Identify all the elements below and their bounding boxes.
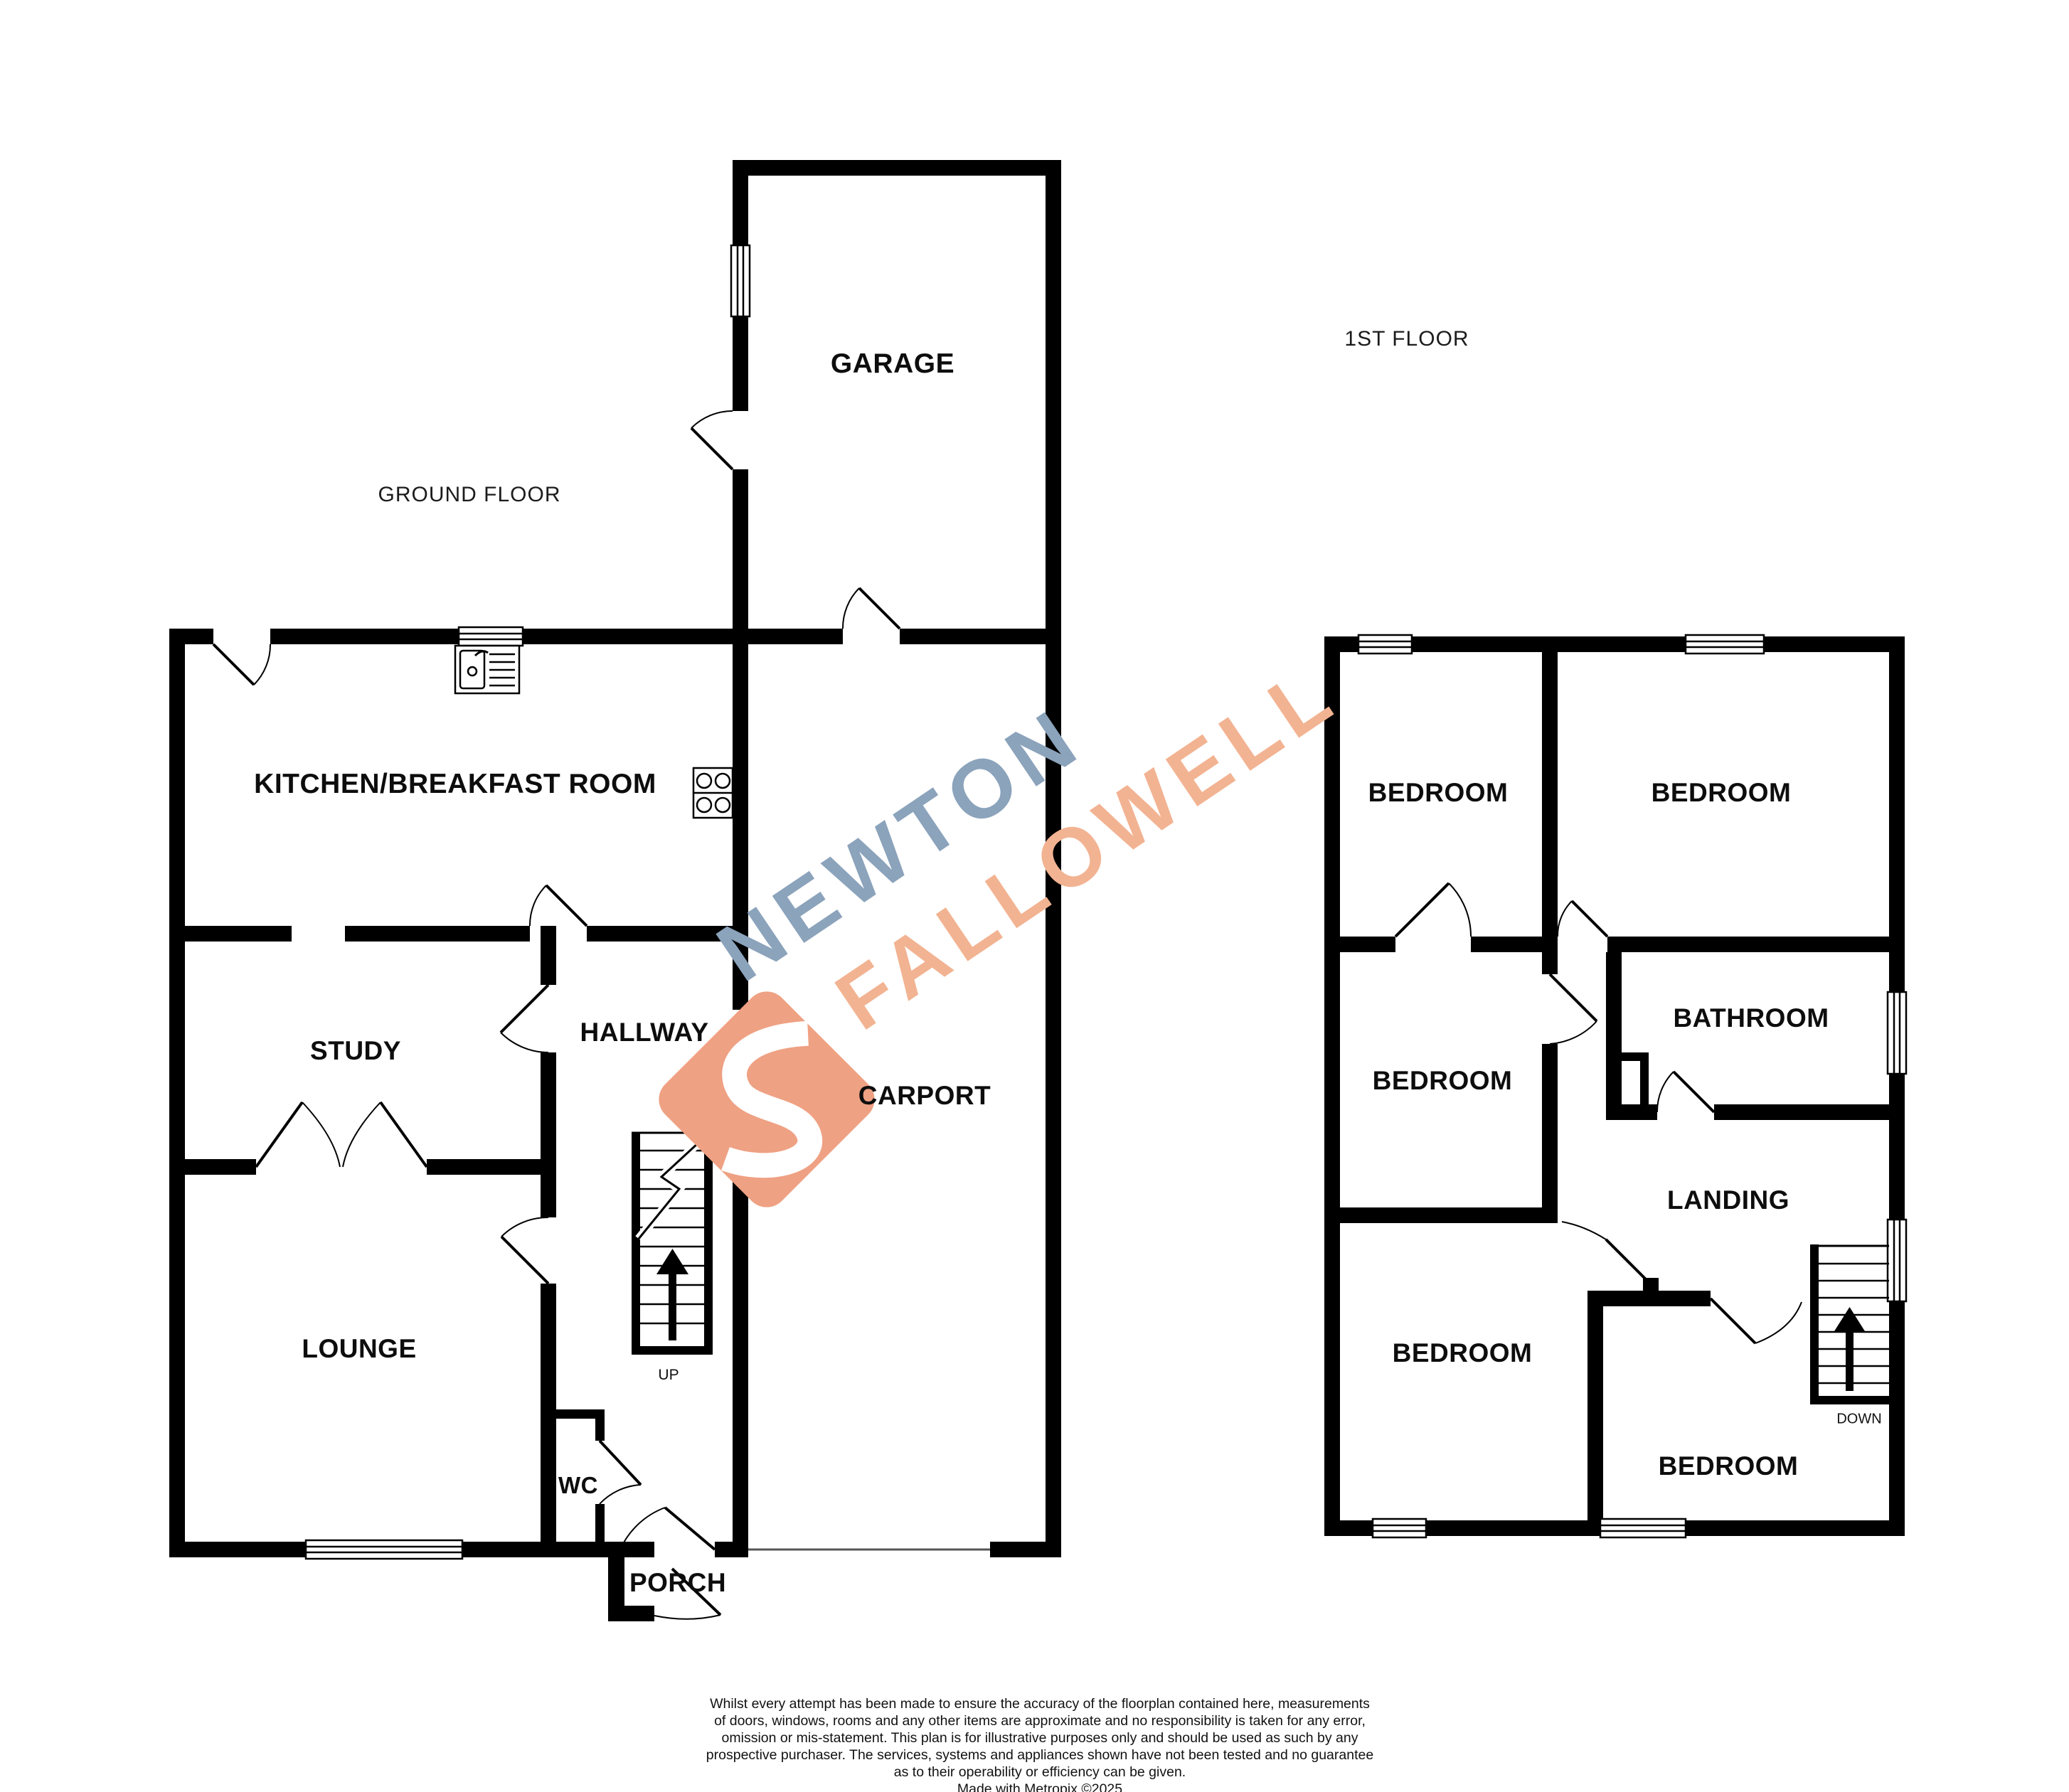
bedroom-top-right-door [1558,901,1607,937]
floorplan-canvas: NEWTON FALLOWELL GROUND FLOOR 1ST FLOOR … [0,0,2069,1792]
bedroom-top-left-door [1395,883,1471,937]
bedroom-top-left-window [1358,635,1412,654]
bedroom-bottom-left-door [1562,1222,1651,1284]
stairs-down-label: DOWN [1836,1412,1881,1428]
room-label-porch: PORCH [629,1568,726,1598]
garage-side-door [691,411,733,469]
room-label-garage: GARAGE [831,348,954,380]
kitchen-hallway-door [530,885,587,926]
bedroom-mid-left-door [1550,974,1597,1044]
floorplan-drawing [0,0,2069,1792]
study-door [501,985,548,1052]
room-label-bedroom-bottom-left: BEDROOM [1393,1338,1533,1368]
lounge-door [501,1217,548,1284]
disclaimer-line-4: prospective purchaser. The services, sys… [613,1746,1467,1764]
kitchen-window [459,627,523,646]
disclaimer-line-2: of doors, windows, rooms and any other i… [613,1712,1467,1729]
bedroom-bottom-left-window [1373,1519,1426,1537]
disclaimer-line-3: omission or mis-statement. This plan is … [613,1729,1467,1746]
garage-carport-door [843,588,900,629]
bedroom-bottom-right-window [1600,1519,1686,1537]
lounge-window [306,1540,462,1559]
first-floor-title: 1ST FLOOR [1344,327,1469,351]
room-label-carport: CARPORT [858,1081,991,1111]
kitchen-top-door [213,644,270,685]
cooker-hob-icon [693,768,733,818]
room-label-bedroom-bottom-right: BEDROOM [1659,1451,1799,1481]
bedroom-bottom-right-door [1711,1298,1802,1343]
room-label-wc: WC [558,1472,598,1499]
ground-floor-title: GROUND FLOOR [378,483,560,507]
room-label-study: STUDY [310,1036,401,1066]
room-label-bathroom: BATHROOM [1673,1003,1829,1033]
room-label-kitchen: KITCHEN/BREAKFAST ROOM [254,769,656,800]
room-label-bedroom-mid-left: BEDROOM [1373,1066,1513,1096]
stairs-up-arrow-icon [656,1249,688,1340]
bathroom-window [1888,992,1906,1074]
bathroom-door [1657,1072,1714,1112]
room-label-landing: LANDING [1667,1185,1789,1215]
disclaimer-line-6: Made with Metropix ©2025 [613,1781,1467,1792]
disclaimer-line-1: Whilst every attempt has been made to en… [613,1695,1467,1712]
disclaimer-text: Whilst every attempt has been made to en… [613,1695,1467,1792]
room-label-hallway: HALLWAY [580,1018,709,1047]
kitchen-sink-icon [455,646,519,693]
room-label-lounge: LOUNGE [302,1334,416,1364]
study-double-doors [256,1102,427,1167]
wc-door [600,1441,641,1504]
stairs-up-label: UP [658,1367,679,1384]
disclaimer-line-5: as to their operability or efficiency ca… [613,1764,1467,1781]
garage-window [731,245,750,316]
stairs-landing-window [1888,1220,1906,1301]
room-label-bedroom-top-left: BEDROOM [1368,778,1509,808]
bedroom-top-right-window [1686,635,1764,654]
room-label-bedroom-top-right: BEDROOM [1652,778,1792,808]
